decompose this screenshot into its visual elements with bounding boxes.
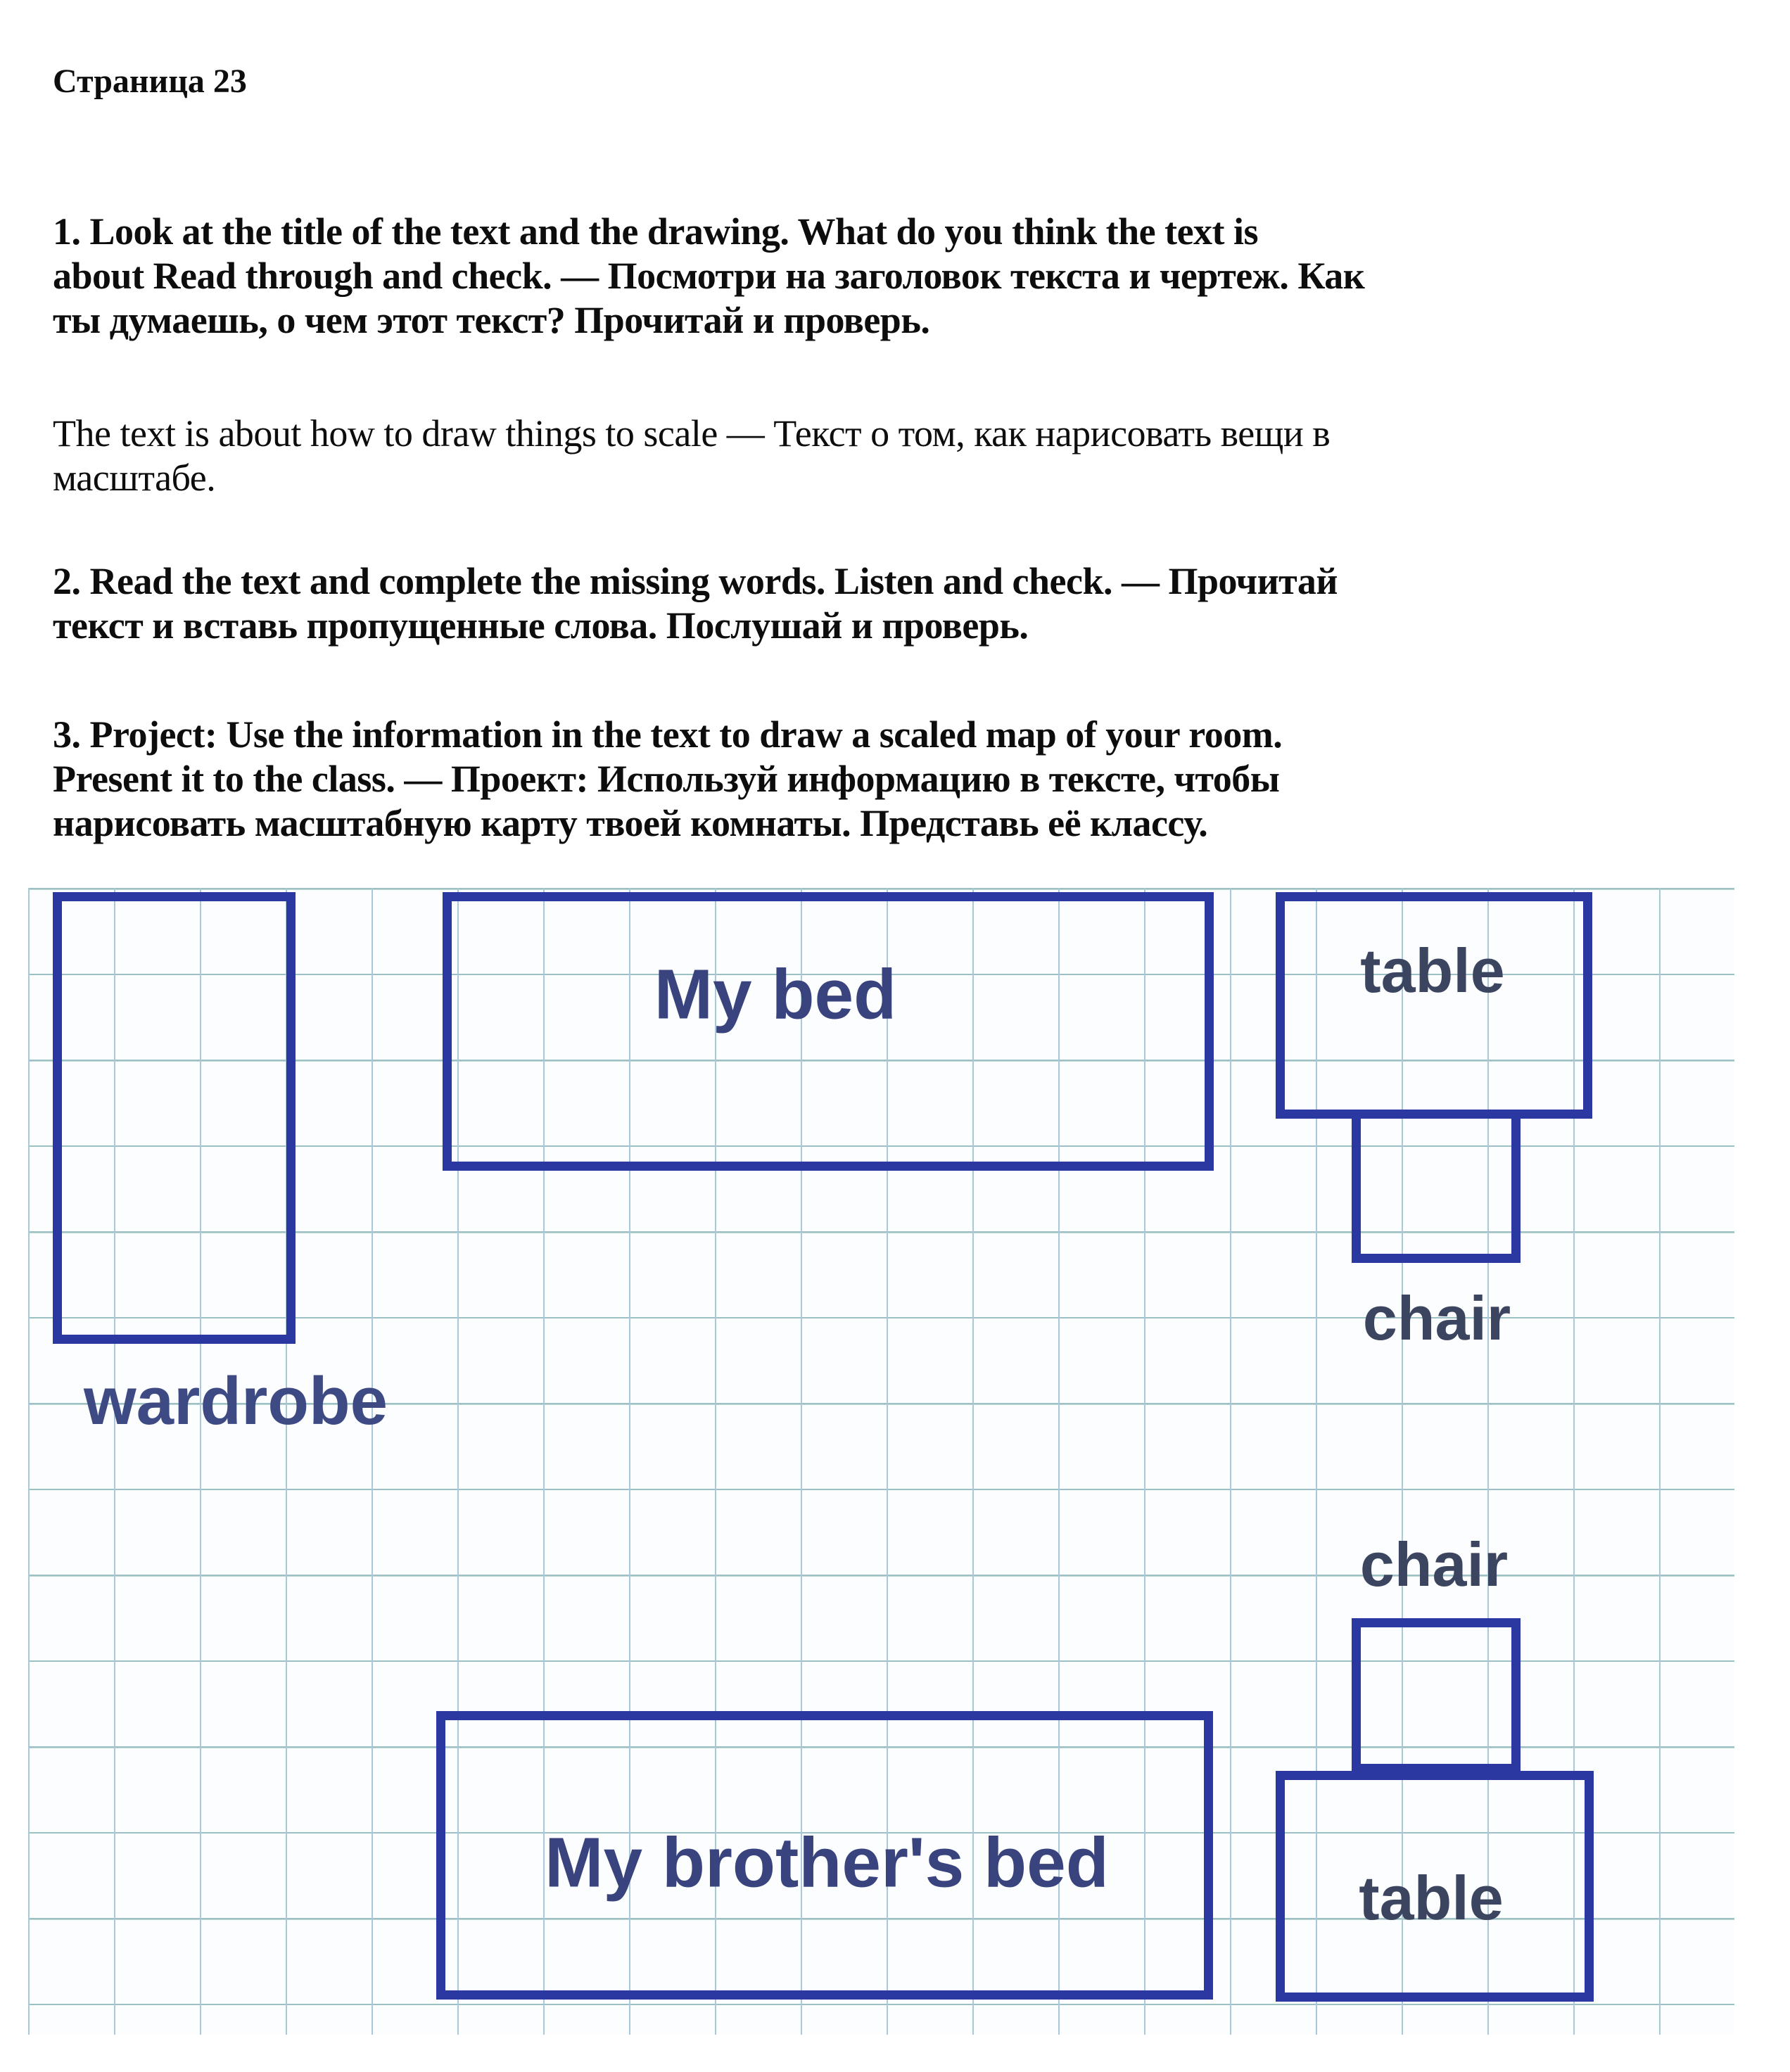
task-3-line-2: Present it to the class. — Проект: Испол… [53,757,1741,801]
chair-bottom-outline [1352,1618,1521,1773]
brothers-bed-label: My brother's bed [545,1823,1109,1904]
answer-line-2: масштабе. [53,456,1741,500]
wardrobe-label: wardrobe [84,1363,388,1440]
chair-top-label: chair [1363,1283,1511,1354]
task-1-answer-paragraph: The text is about how to draw things to … [53,412,1741,500]
chair-bottom-label: chair [1360,1529,1508,1601]
table-top-label: table [1360,935,1504,1007]
page-title: Страница 23 [53,62,247,101]
task-3-line-3: нарисовать масштабную карту твоей комнат… [53,801,1741,846]
table-bottom-label: table [1359,1862,1503,1934]
task-3-paragraph: 3. Project: Use the information in the t… [53,713,1741,846]
task-1-paragraph: 1. Look at the title of the text and the… [53,210,1741,343]
page: { "page": { "title": "Страница 23" }, "p… [0,0,1790,2072]
my-bed-label: My bed [654,955,896,1036]
task-1-line-1: 1. Look at the title of the text and the… [53,210,1741,254]
task-2-line-2: текст и вставь пропущенные слова. Послуш… [53,604,1741,648]
answer-line-1: The text is about how to draw things to … [53,412,1741,456]
wardrobe-outline [53,892,296,1344]
task-2-paragraph: 2. Read the text and complete the missin… [53,559,1741,648]
task-2-line-1: 2. Read the text and complete the missin… [53,559,1741,604]
task-1-line-2: about Read through and check. — Посмотри… [53,254,1741,298]
chair-top-outline [1352,1110,1521,1263]
room-map-grid-paper: My bed wardrobe table chair chair table … [28,888,1734,2035]
task-3-line-1: 3. Project: Use the information in the t… [53,713,1741,757]
task-1-line-3: ты думаешь, о чем этот текст? Прочитай и… [53,298,1741,343]
